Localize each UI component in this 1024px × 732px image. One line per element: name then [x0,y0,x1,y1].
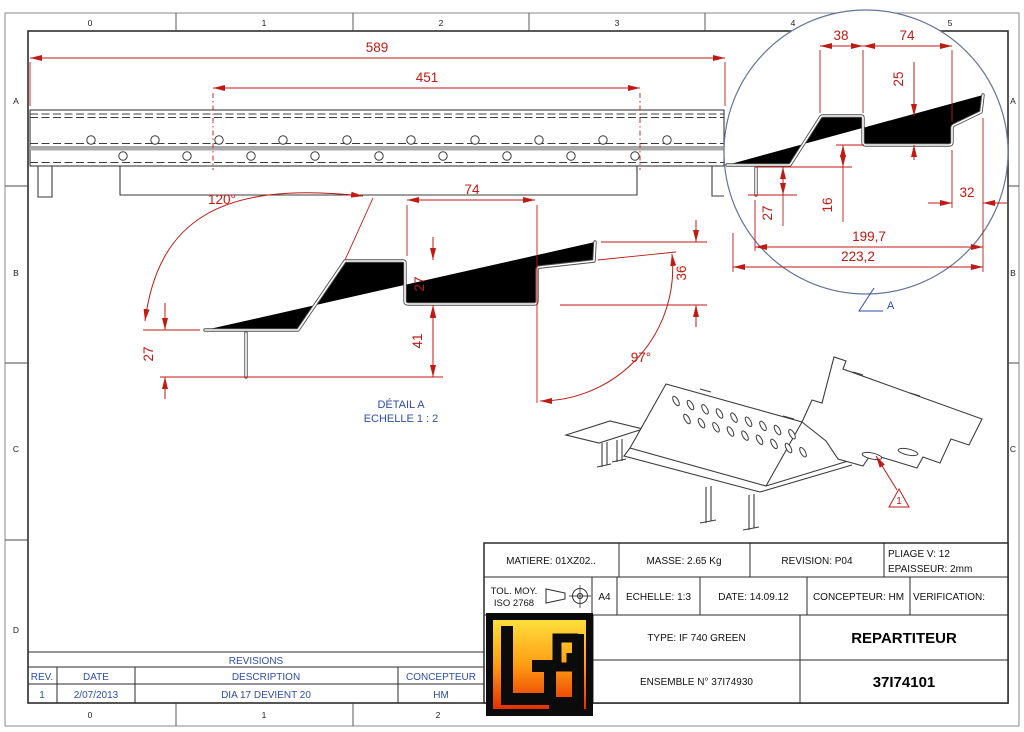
revisions-header-concepteur: CONCEPTEUR [406,672,476,683]
dim-label-seg2: 74 [899,28,915,43]
field-date: DATE: 14.09.12 [718,592,789,603]
zone-label: 0 [88,710,93,720]
section-view: 120° 27 74 27 41 36 [141,182,707,425]
dim-label-seg1: 38 [833,28,848,43]
zone-label: C [13,444,19,454]
dim-label-lip-detail: 32 [959,185,974,200]
revision-concepteur: HM [433,690,449,701]
dim-label-lip: 36 [674,265,689,280]
zone-label: 2 [439,18,444,28]
dim-451: 451 [213,70,640,170]
zone-label: D [13,625,19,635]
dim-flange-27: 27 [141,303,165,399]
field-pliage: PLIAGE V: 12 [888,549,950,560]
field-echelle: ECHELLE: 1:3 [626,592,691,603]
company-logo [486,613,593,716]
dim-label-overall: 589 [366,40,389,55]
zone-label: 5 [948,18,953,28]
zone-label: 2 [436,710,441,720]
revisions-header-rev: REV. [31,672,53,683]
zone-ruler-left: A B C D [13,96,19,635]
zone-label: B [1010,268,1016,278]
field-revision: REVISION: P04 [781,556,853,567]
revision-rev: 1 [39,690,45,701]
dim-label-angle-left: 120° [208,192,236,207]
revision-description: DIA 17 DEVIENT 20 [221,690,311,701]
zone-label: A [13,96,19,106]
field-tolerance-line2: ISO 2768 [494,598,534,609]
dim-label-step: 25 [891,71,906,86]
field-type: TYPE: IF 740 GREEN [647,633,745,644]
dim-41: 41 [410,306,433,377]
dim-label-outer-width: 223,2 [841,249,875,264]
zone-label: 1 [262,18,267,28]
zone-label: B [13,268,19,278]
top-view: 589 451 [30,40,725,197]
dim-label-depth: 27 [412,276,427,291]
dim-label-inner-width: 199,7 [852,229,886,244]
dim-74-section: 74 [407,182,535,200]
field-epaisseur: EPAISSEUR: 2mm [888,564,972,575]
revisions-header-description: DESCRIPTION [232,672,300,683]
dim-label-drop: 41 [410,333,425,348]
zone-ruler-right: A B C [1010,96,1016,454]
zone-label: A [1010,96,1016,106]
zone-label: 0 [88,18,93,28]
dim-589: 589 [30,40,725,106]
dim-36: 36 [674,220,696,327]
zone-label: 4 [791,18,796,28]
dim-angle-97: 97° [540,254,673,401]
revision-date: 2/07/2013 [74,690,119,701]
part-number: 37I74101 [873,674,936,691]
part-name: REPARTITEUR [851,630,957,647]
dim-label-angle-right: 97° [631,350,651,365]
field-format: A4 [598,592,611,603]
revisions-title: REVISIONS [229,656,284,667]
field-concepteur: CONCEPTEUR: HM [813,592,904,603]
dim-label-flange-detail: 27 [760,205,775,220]
zone-label: 1 [262,710,267,720]
field-ensemble: ENSEMBLE N° 37I74930 [640,677,753,688]
dim-label-inner: 451 [416,70,439,85]
dim-label-flange: 27 [141,346,156,361]
field-matiere: MATIERE: 01XZ02.. [506,556,596,567]
field-masse: MASSE: 2.65 Kg [646,556,721,567]
dim-label-offset: 16 [820,197,835,212]
revision-flag-number: 1 [896,496,902,507]
section-caption-title: DÉTAIL A [377,398,425,411]
section-caption-scale: ECHELLE 1 : 2 [364,413,439,425]
field-tolerance-line1: TOL. MOY. [491,586,538,597]
zone-ruler-bottom: 0 1 2 [88,710,441,720]
dim-label-width: 74 [464,182,480,197]
title-block: MATIERE: 01XZ02.. MASSE: 2.65 Kg REVISIO… [484,543,1008,716]
zone-label: 3 [615,18,620,28]
detail-a-view: 38 74 25 27 16 32 [724,10,1008,312]
zone-label: C [1010,444,1016,454]
detail-label: A [887,300,895,312]
iso-view: 1 [566,357,982,530]
table-row: 1 2/07/2013 DIA 17 DEVIENT 20 HM [39,690,449,701]
field-verification: VERIFICATION: [913,592,985,603]
drawing-canvas: 0 1 2 3 4 5 0 1 2 A B C D A B C 589 [0,0,1024,732]
revisions-table: REVISIONS REV. DATE DESCRIPTION CONCEPTE… [28,652,484,703]
drawing-sheet: 0 1 2 3 4 5 0 1 2 A B C D A B C 589 [0,0,1024,732]
revisions-header-date: DATE [83,672,109,683]
